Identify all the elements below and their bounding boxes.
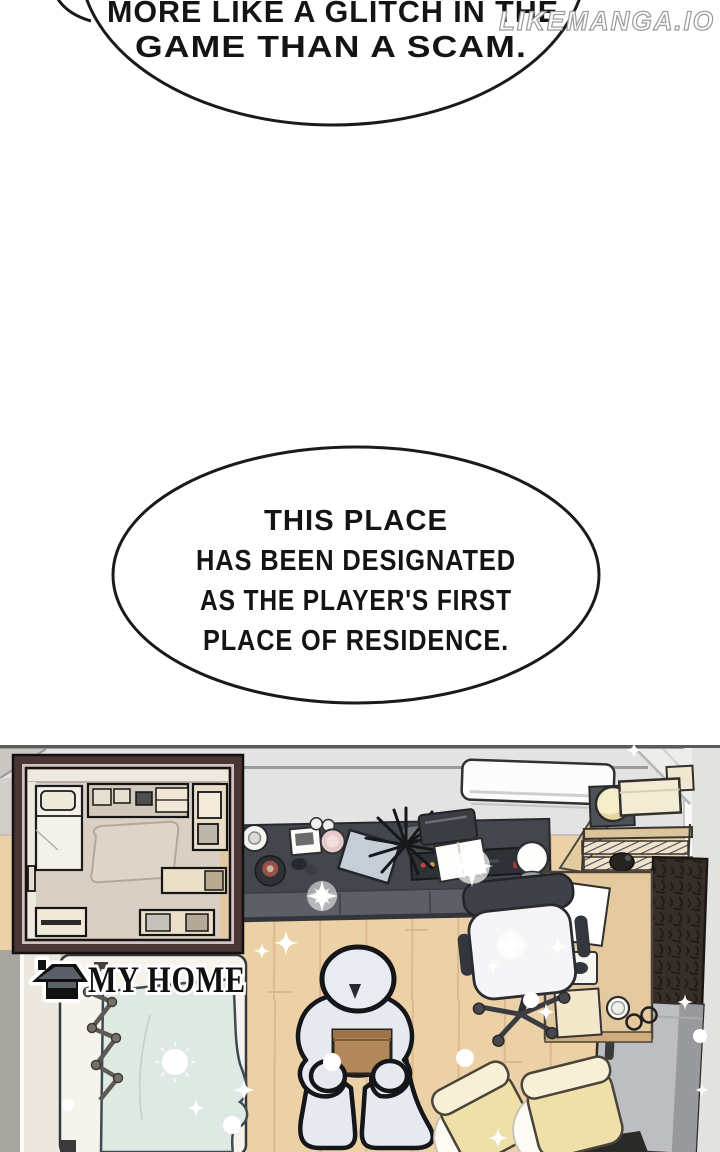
- bowl: [516, 842, 548, 874]
- bubble-1-line-1: MORE LIKE A GLITCH IN THE: [107, 0, 559, 29]
- watermark: LIKEMANGA.IO: [499, 6, 715, 36]
- minimap-floor-plan: [13, 755, 243, 953]
- flower-pot: [255, 855, 286, 886]
- room-panel: MY HOME: [0, 742, 720, 1152]
- minimap-door: [28, 866, 35, 891]
- comic-art: MORE LIKE A GLITCH IN THE GAME THAN A SC…: [0, 0, 720, 1152]
- minimap-bottom-table: [140, 910, 214, 935]
- camera: [610, 853, 634, 871]
- bubble-2-line-1: THIS PLACE: [264, 505, 448, 537]
- bubble-2-line-3: AS THE PLAYER'S FIRST: [200, 585, 512, 617]
- minimap-shelf-bottom: [36, 908, 86, 936]
- speech-bubble-2: THIS PLACE HAS BEEN DESIGNATED AS THE PL…: [113, 447, 599, 703]
- photo-card: [290, 827, 322, 856]
- minimap-desk: [193, 784, 227, 850]
- bubble-2-line-2: HAS BEEN DESIGNATED: [196, 545, 516, 577]
- minimap-shelf: [88, 784, 188, 817]
- minimap-low-table: [162, 868, 226, 893]
- bubble-1-line-2: GAME THAN A SCAM.: [135, 29, 527, 64]
- my-home-text: MY HOME: [88, 960, 246, 1001]
- bubble-2-line-4: PLACE OF RESIDENCE.: [203, 625, 509, 657]
- minimap-bed: [36, 786, 82, 870]
- my-home-label: MY HOME: [32, 960, 246, 1001]
- comic-page: MORE LIKE A GLITCH IN THE GAME THAN A SC…: [0, 0, 720, 1152]
